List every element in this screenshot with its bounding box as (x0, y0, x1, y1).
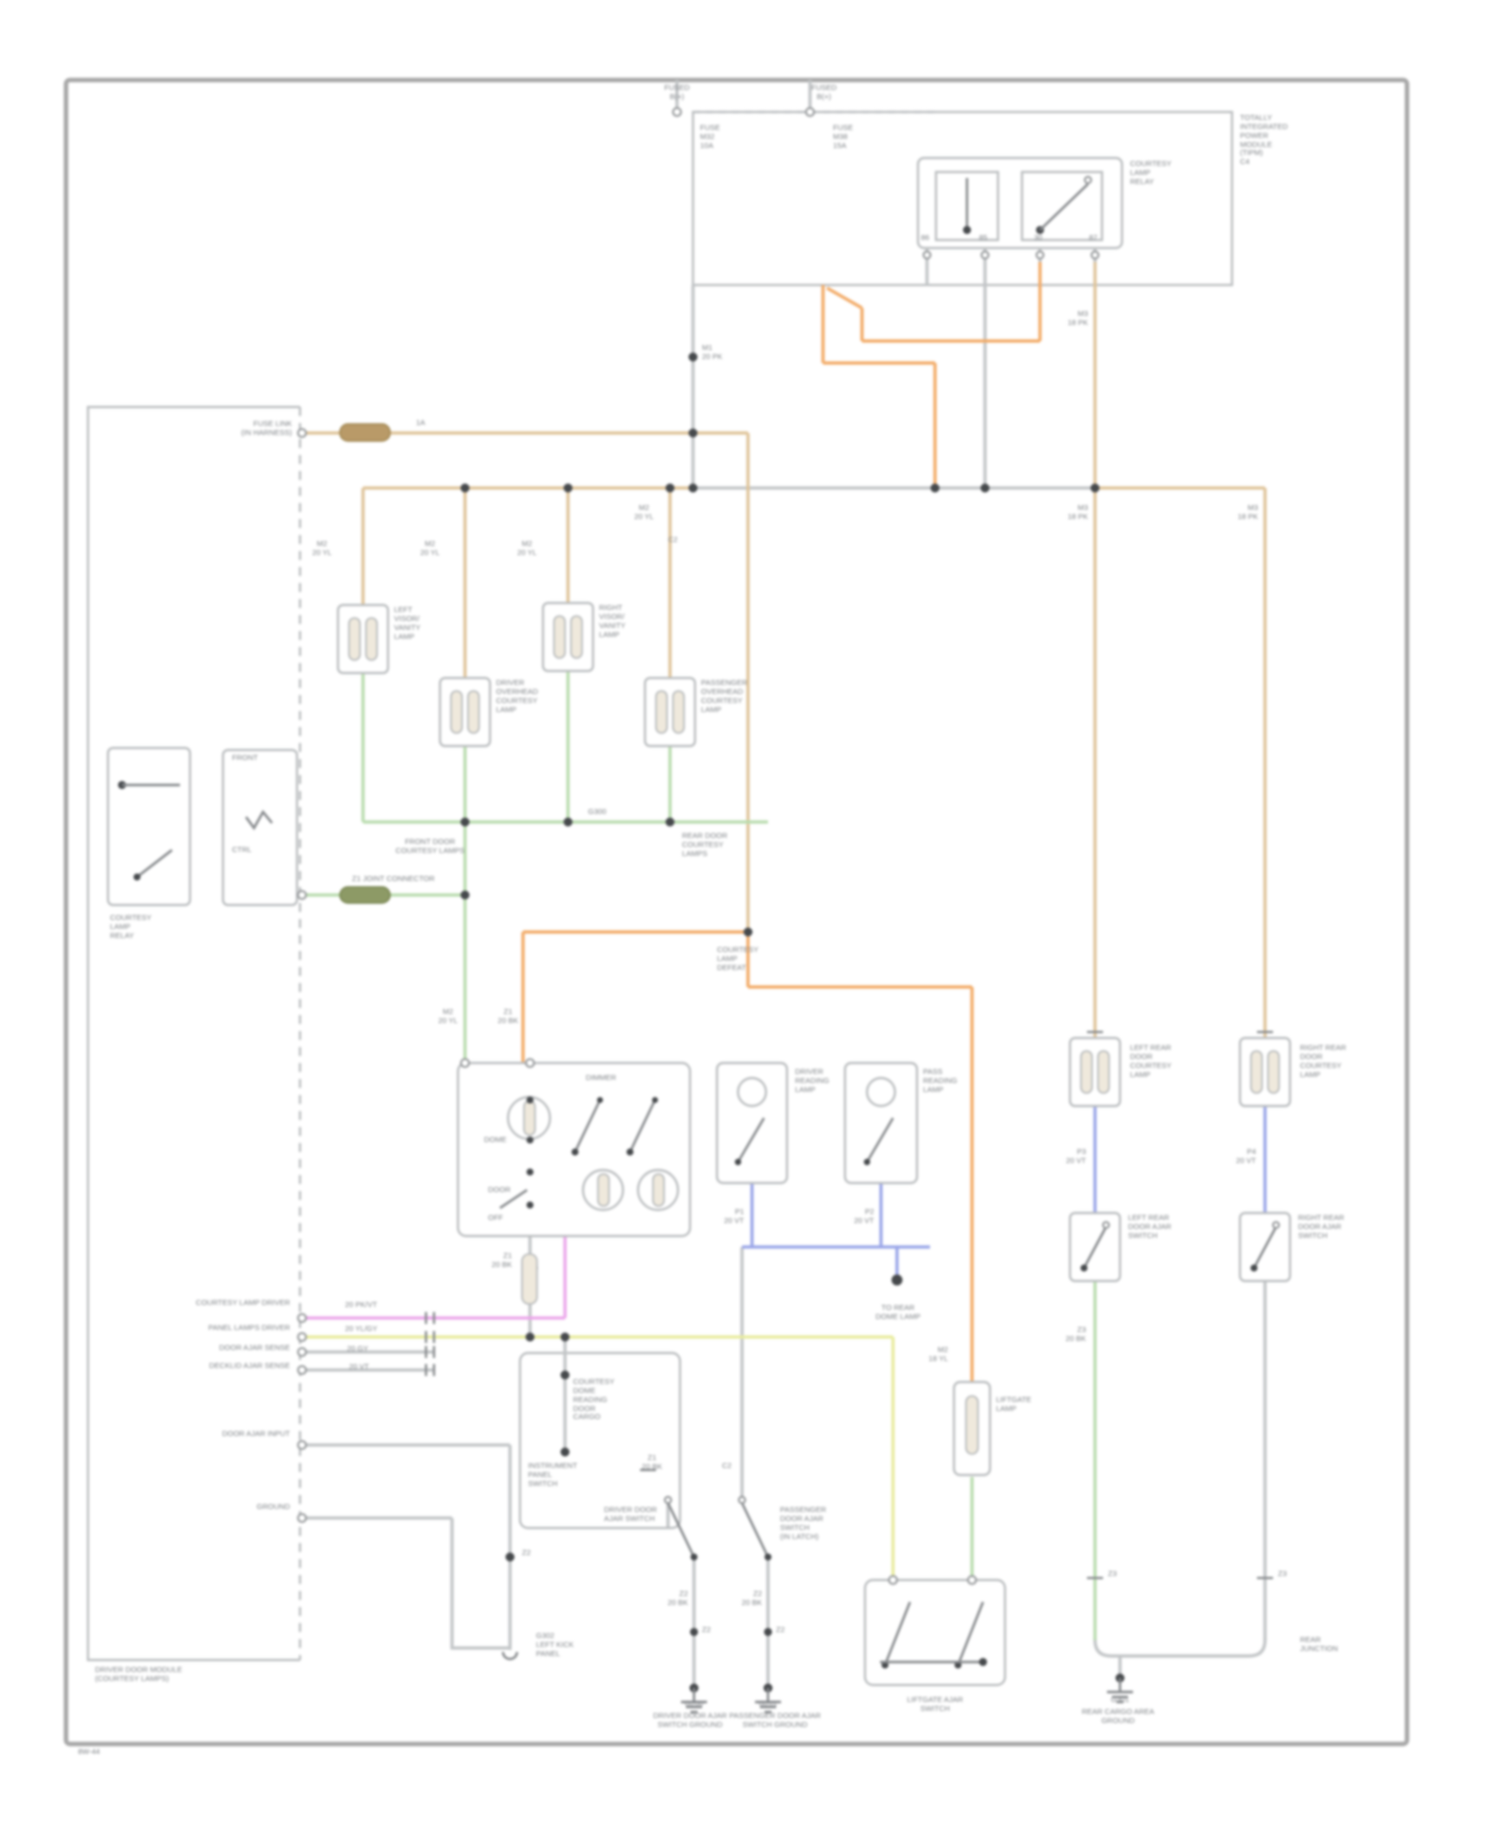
left-visor-lamp (338, 605, 388, 673)
rear-door-switches (1070, 1213, 1290, 1281)
passenger-overhead-lamp (645, 678, 695, 746)
dimmer-switch-box (458, 1063, 690, 1236)
liftgate-components (865, 1382, 1005, 1685)
left-rear-door-lamp (1070, 1038, 1120, 1106)
ground-g201 (755, 1684, 781, 1713)
junction-dots (461, 353, 1100, 1637)
driver-overhead-lamp (440, 678, 490, 746)
diagram-canvas (0, 0, 1500, 1828)
console-box (520, 1337, 680, 1528)
ground-g301 (1107, 1674, 1133, 1703)
ground-g200 (681, 1684, 707, 1713)
yellow-wires (302, 1337, 893, 1580)
courtesy-lamp-relay (918, 158, 1122, 262)
left-rear-ajar-switch (1070, 1213, 1120, 1281)
reading-lamp-boxes (717, 1063, 917, 1183)
gray-wires (302, 80, 1265, 1688)
right-rear-ajar-switch (1240, 1213, 1290, 1281)
wiring-diagram: FUSEDB(+)FUSEDB(+)FUSEM3210AFUSEM3815ATO… (0, 0, 1500, 1828)
right-rear-door-lamp (1240, 1038, 1290, 1106)
tan-wires (302, 262, 1265, 1038)
page-frame (66, 80, 1407, 1744)
lamp-components (338, 603, 1290, 1106)
connector-symbols (298, 108, 1273, 1659)
right-visor-lamp (543, 603, 593, 671)
blue-wires (742, 1106, 1265, 1278)
left-relay (108, 748, 297, 905)
green-wires (302, 671, 1095, 1640)
ground-symbols (681, 1674, 1133, 1713)
left-module-box (88, 407, 300, 1660)
page: FUSEDB(+)FUSEDB(+)FUSEM3210AFUSEM3815ATO… (0, 0, 1500, 1828)
